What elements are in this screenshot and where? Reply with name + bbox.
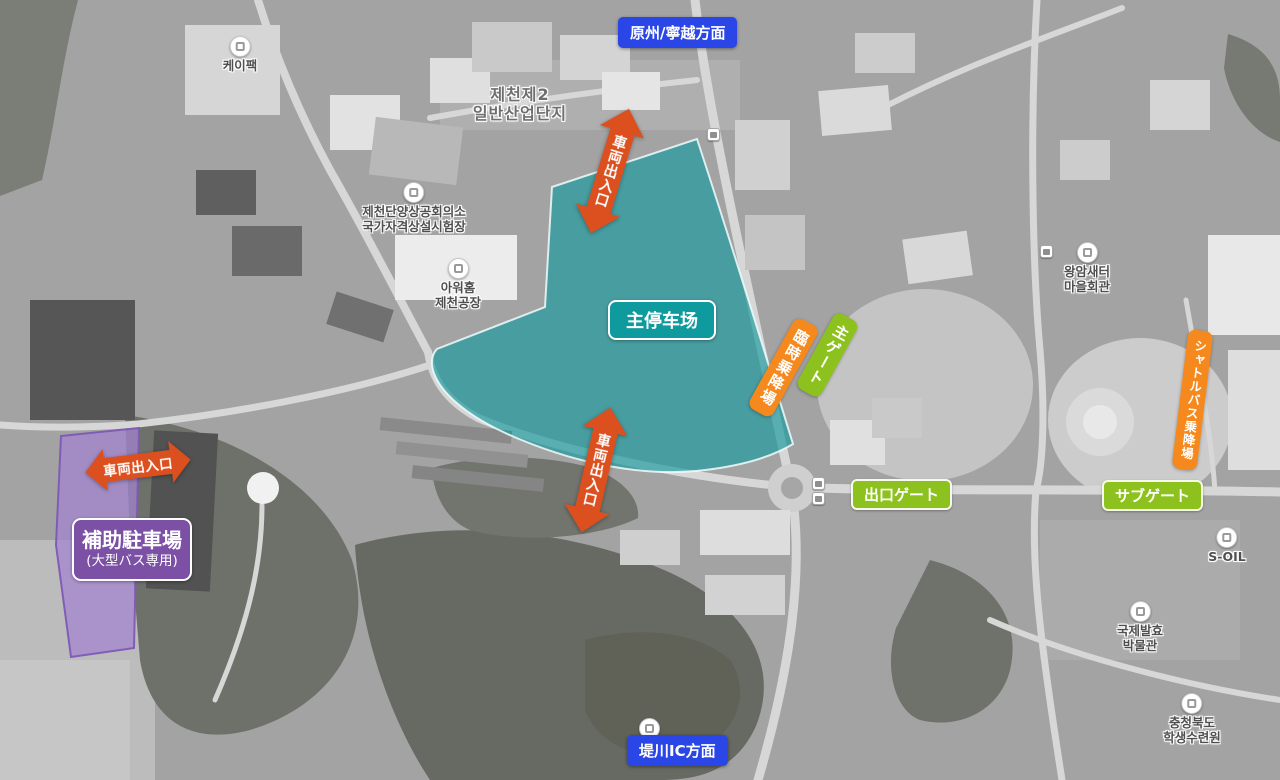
main-parking-label: 主停车场 [608,300,716,340]
place-marker-icon [1129,601,1150,622]
poi-gas-station: S-OIL [1208,527,1245,565]
poi-student-center: 충청북도 학생수련원 [1163,693,1221,746]
bus-stop-icon [1040,245,1053,258]
aux-parking-subtitle: (大型バス専用) [82,553,182,571]
bus-stop-icon [707,128,720,141]
bus-stop-icon [812,477,825,490]
place-marker-icon [1217,527,1238,548]
place-marker-icon [229,36,250,57]
place-marker-icon [1181,693,1202,714]
vehicle-entrance-arrow-west: 車両出入口 [83,439,193,494]
direction-badge-jecheon-ic: 堤川IC方面 [627,735,728,766]
vehicle-entrance-arrow-top: 車両出入口 [569,102,651,240]
poi-chamber-of-commerce: 제천단양상공회의소 국가자격상설시험장 [362,182,466,235]
arrowhead-down [559,504,609,538]
shuttle-bus-boarding-label: シャトルバス乗降場 [1172,329,1213,470]
sub-gate-badge: サブゲート [1102,480,1203,511]
place-marker-icon [447,258,468,279]
poi-fermentation-museum: 국제발효 박물관 [1117,601,1163,654]
poi-village-hall: 왕암새터 마을회관 [1064,242,1110,295]
bus-stop-icon [812,492,825,505]
poi-keipack: 케이팩 [223,36,258,74]
vehicle-entrance-arrow-bottom: 車両出入口 [559,402,633,537]
direction-badge-wonju-yeongwol: 原州/寧越方面 [618,17,737,48]
poi-industrial-complex: 제천제2 일반산업단지 [473,86,567,124]
place-marker-icon [1076,242,1097,263]
arrowhead-down [569,203,620,239]
exit-gate-badge: 出口ゲート [851,479,952,510]
parking-guide-map: 케이팩 제천제2 일반산업단지 제천단양상공회의소 국가자격상설시험장 아워홈 … [0,0,1280,780]
aux-parking-label: 補助駐車場 (大型バス専用) [72,518,192,581]
aux-parking-title: 補助駐車場 [82,528,182,553]
place-marker-icon [403,182,424,203]
poi-ourhome-factory: 아워홈 제천공장 [435,258,481,311]
